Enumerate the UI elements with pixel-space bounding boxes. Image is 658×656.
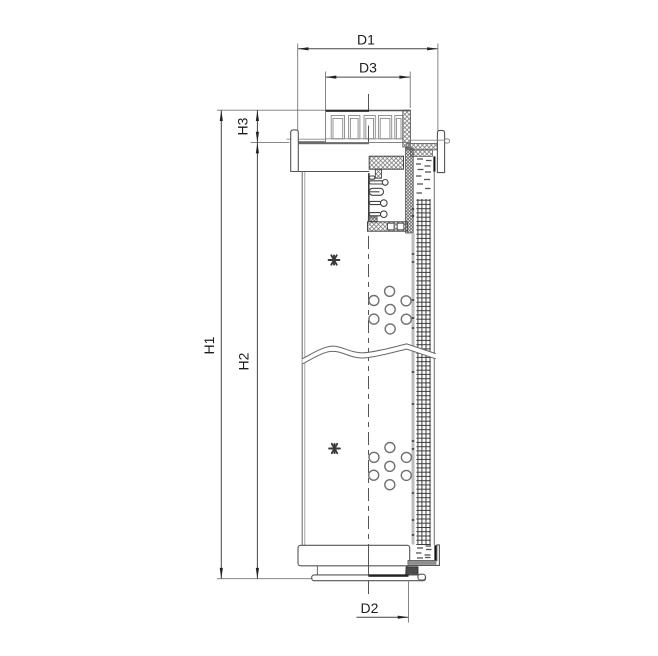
svg-text:D3: D3 [359,60,377,76]
svg-text:H1: H1 [201,336,217,354]
svg-text:H3: H3 [235,117,251,135]
svg-text:D2: D2 [361,600,379,616]
svg-text:H2: H2 [236,352,252,370]
svg-text:D1: D1 [357,32,375,48]
